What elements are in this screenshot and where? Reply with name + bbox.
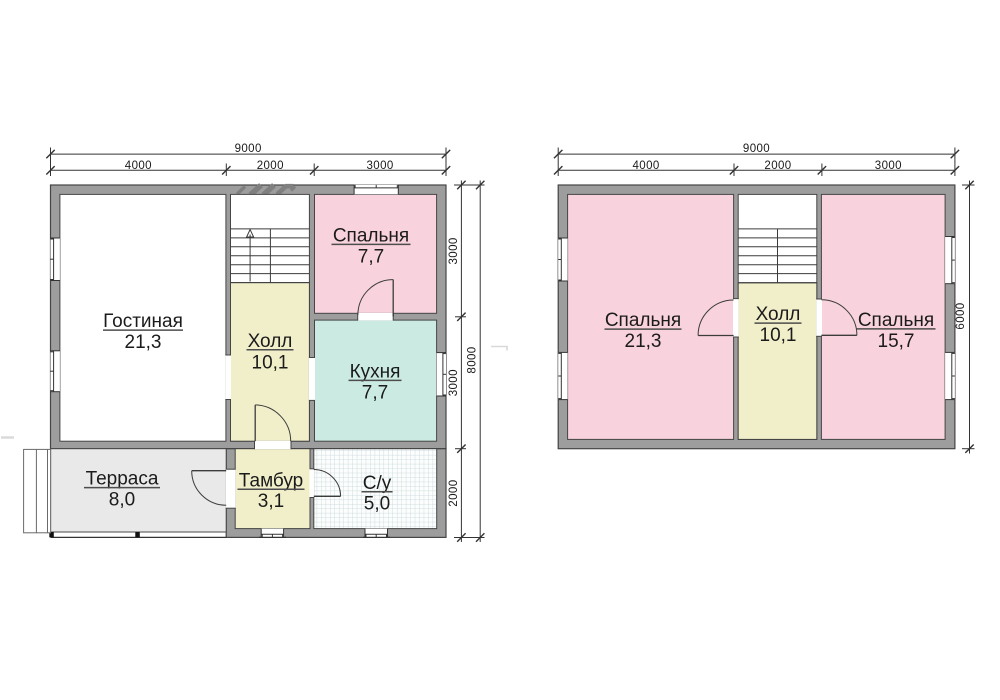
svg-text:3000: 3000 [448,237,460,264]
svg-text:2000: 2000 [764,160,791,172]
svg-text:8,0: 8,0 [109,490,135,511]
svg-text:С/у: С/у [363,473,392,494]
svg-text:Кухня: Кухня [350,362,401,383]
svg-text:7,7: 7,7 [358,246,384,267]
svg-text:3000: 3000 [875,160,902,172]
svg-text:21,3: 21,3 [625,331,662,352]
svg-text:10,1: 10,1 [760,325,797,346]
svg-text:3000: 3000 [367,160,394,172]
svg-text:9000: 9000 [743,143,770,155]
svg-text:4000: 4000 [633,160,660,172]
svg-text:7,7: 7,7 [362,382,388,403]
svg-text:Спальня: Спальня [858,310,934,331]
svg-text:9000: 9000 [235,143,262,155]
svg-text:10,1: 10,1 [252,352,289,373]
svg-text:8000: 8000 [467,346,479,373]
svg-text:21,3: 21,3 [125,332,162,353]
svg-text:Терраса: Терраса [86,469,159,490]
svg-text:2000: 2000 [448,480,460,507]
svg-text:Спальня: Спальня [605,310,681,331]
svg-text:4000: 4000 [125,160,152,172]
svg-text:3,1: 3,1 [258,491,284,512]
svg-text:Холл: Холл [756,304,801,325]
svg-text:15,7: 15,7 [878,331,915,352]
svg-text:3000: 3000 [448,369,460,396]
svg-text:Холл: Холл [248,331,293,352]
svg-text:5,0: 5,0 [364,494,390,515]
svg-text:Тамбур: Тамбур [239,470,304,491]
svg-text:6000: 6000 [955,302,967,329]
svg-text:Спальня: Спальня [333,226,409,247]
svg-text:Гостиная: Гостиная [103,311,183,332]
svg-text:2000: 2000 [257,160,284,172]
